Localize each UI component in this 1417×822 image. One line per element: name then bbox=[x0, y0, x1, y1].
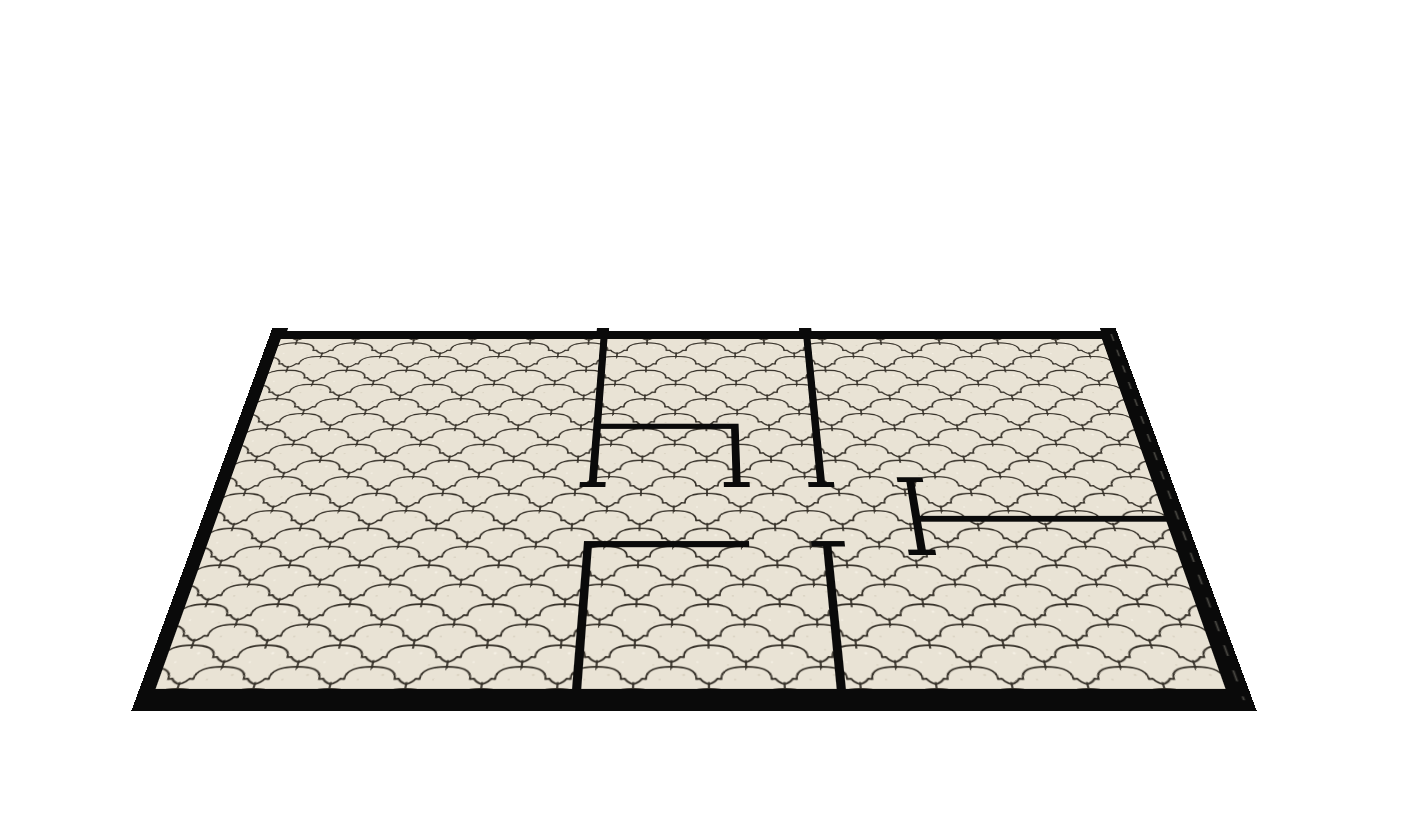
wall-top-right-corner-cap bbox=[1100, 328, 1117, 332]
cap-wall-a-south bbox=[579, 482, 605, 487]
wall-corridor-south bbox=[584, 541, 750, 547]
cap-wall-c-south bbox=[724, 482, 750, 487]
wall-top-left-corner-cap bbox=[271, 328, 288, 332]
cap-wall-g-north bbox=[811, 541, 845, 546]
wall-outer-bottom-face bbox=[131, 706, 1256, 711]
wall-d-top-cap bbox=[799, 328, 812, 332]
floorplan-svg[interactable] bbox=[133, 331, 1255, 706]
wall-a-top-cap bbox=[597, 328, 610, 332]
cap-wall-e-south bbox=[908, 550, 936, 555]
tiled-floor bbox=[149, 337, 1241, 694]
cap-wall-d-south bbox=[808, 482, 834, 487]
wall-outer-bottom bbox=[133, 689, 1255, 706]
scene-background bbox=[0, 0, 1417, 822]
floorplan-3d-view[interactable] bbox=[133, 331, 1255, 706]
wall-outer-top bbox=[268, 331, 1119, 339]
wall-f-right-room-divider bbox=[916, 516, 1173, 522]
cap-wall-e-north bbox=[897, 477, 924, 482]
wall-b-closet-north bbox=[593, 424, 739, 429]
